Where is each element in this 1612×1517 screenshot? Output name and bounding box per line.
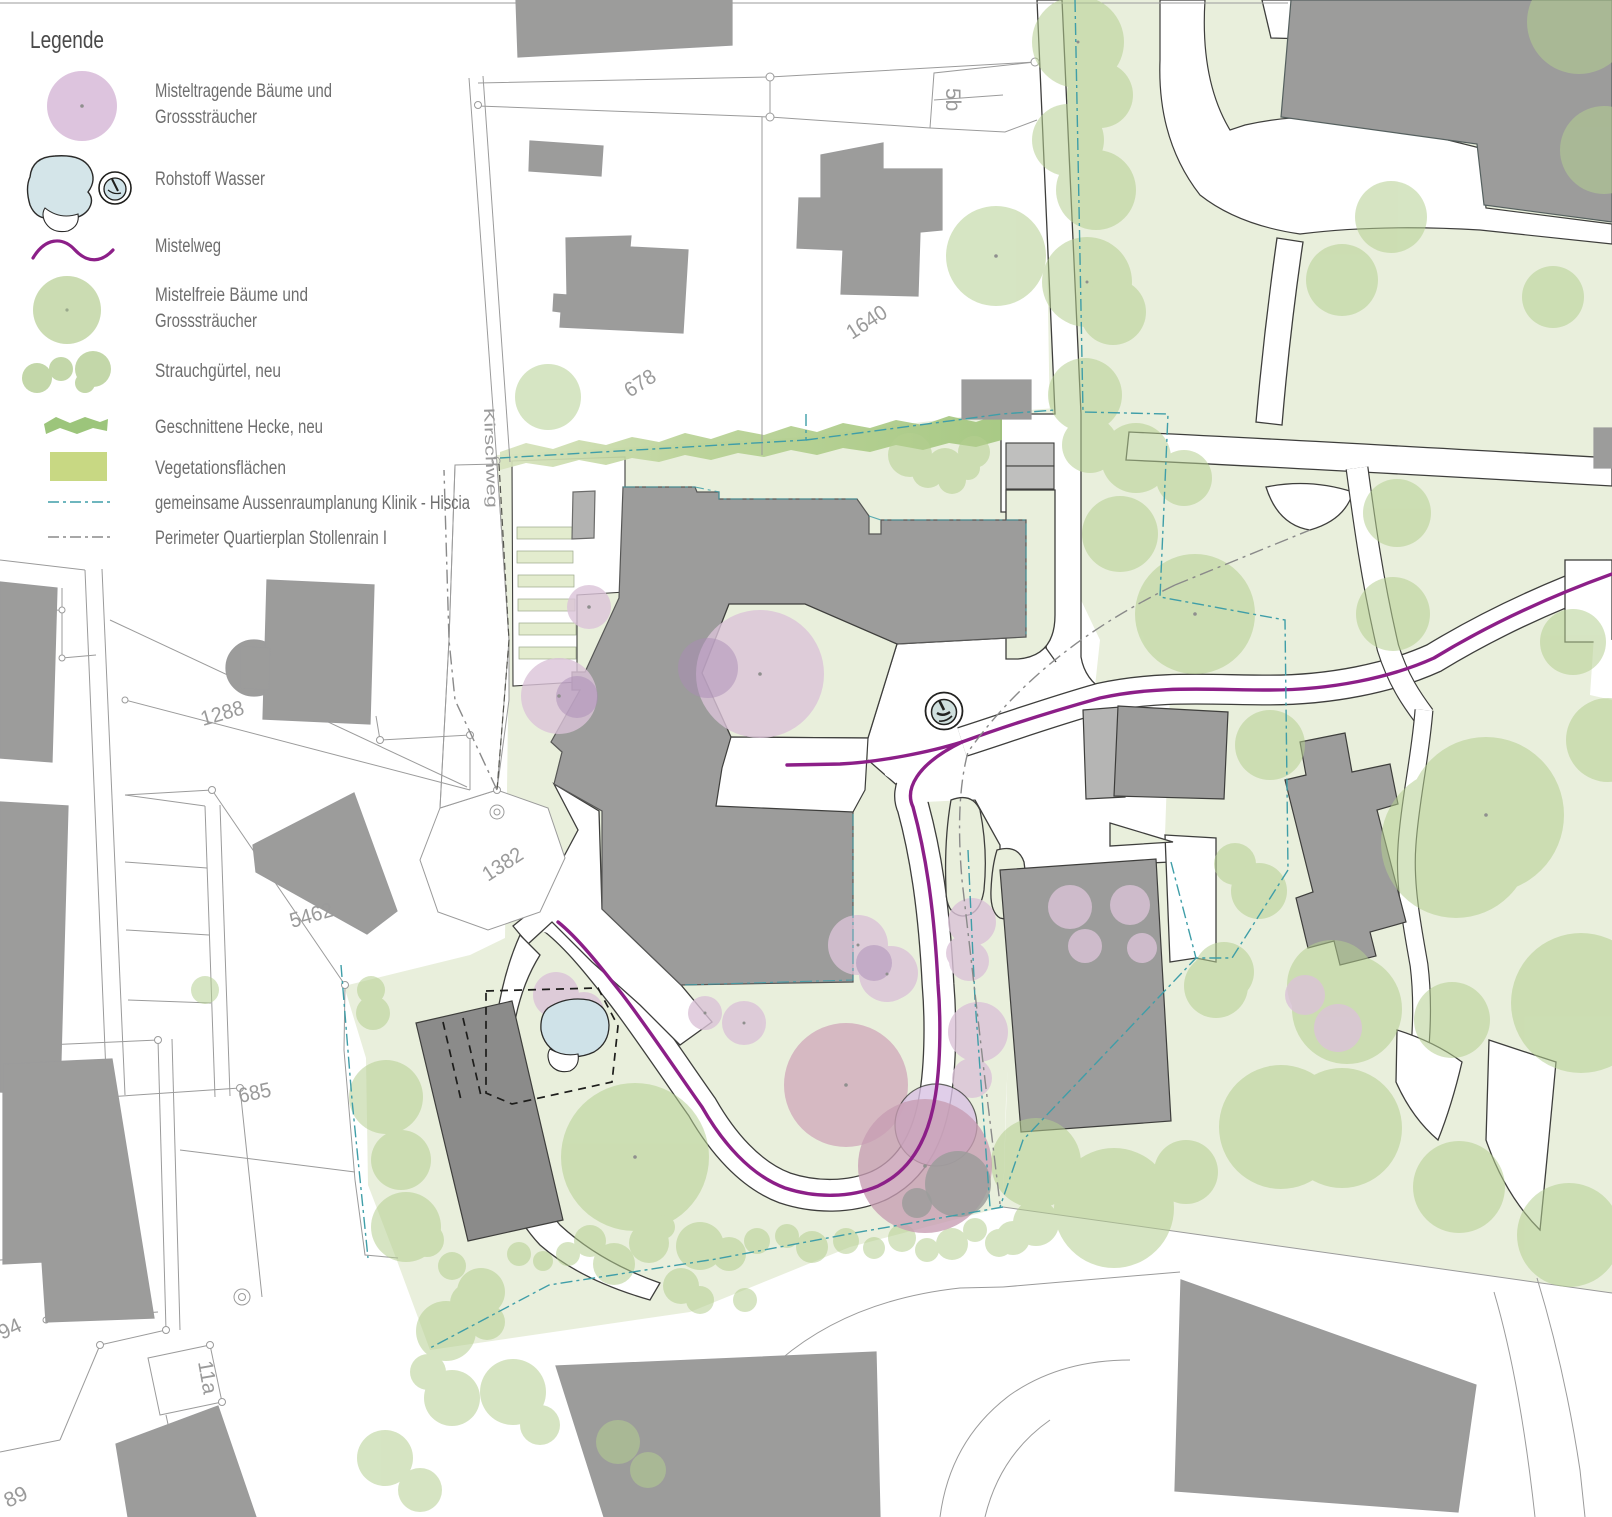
svg-text:Grosssträucher: Grosssträucher [155, 311, 258, 332]
svg-text:5b: 5b [941, 88, 964, 111]
svg-text:Grosssträucher: Grosssträucher [155, 107, 258, 128]
svg-text:Legende: Legende [30, 27, 104, 54]
svg-text:gemeinsame Aussenraumplanung K: gemeinsame Aussenraumplanung Klinik - Hi… [155, 493, 470, 514]
svg-text:Strauchgürtel, neu: Strauchgürtel, neu [155, 361, 281, 382]
svg-text:Misteltragende Bäume und: Misteltragende Bäume und [155, 81, 332, 102]
svg-text:678: 678 [620, 365, 660, 402]
svg-text:Kirschweg: Kirschweg [480, 408, 500, 509]
svg-text:Geschnittene Hecke, neu: Geschnittene Hecke, neu [155, 417, 323, 438]
svg-text:Mistelfreie Bäume und: Mistelfreie Bäume und [155, 285, 308, 306]
svg-text:94: 94 [0, 1314, 26, 1345]
svg-text:89: 89 [0, 1482, 31, 1513]
svg-text:Perimeter Quartierplan Stollen: Perimeter Quartierplan Stollenrain I [155, 528, 387, 549]
svg-text:11a: 11a [193, 1359, 222, 1396]
svg-text:Rohstoff Wasser: Rohstoff Wasser [155, 169, 266, 190]
svg-text:685: 685 [236, 1079, 273, 1108]
svg-text:Vegetationsflächen: Vegetationsflächen [155, 458, 286, 479]
svg-text:1640: 1640 [842, 301, 891, 344]
svg-text:5462: 5462 [287, 899, 336, 933]
svg-text:Mistelweg: Mistelweg [155, 236, 221, 257]
